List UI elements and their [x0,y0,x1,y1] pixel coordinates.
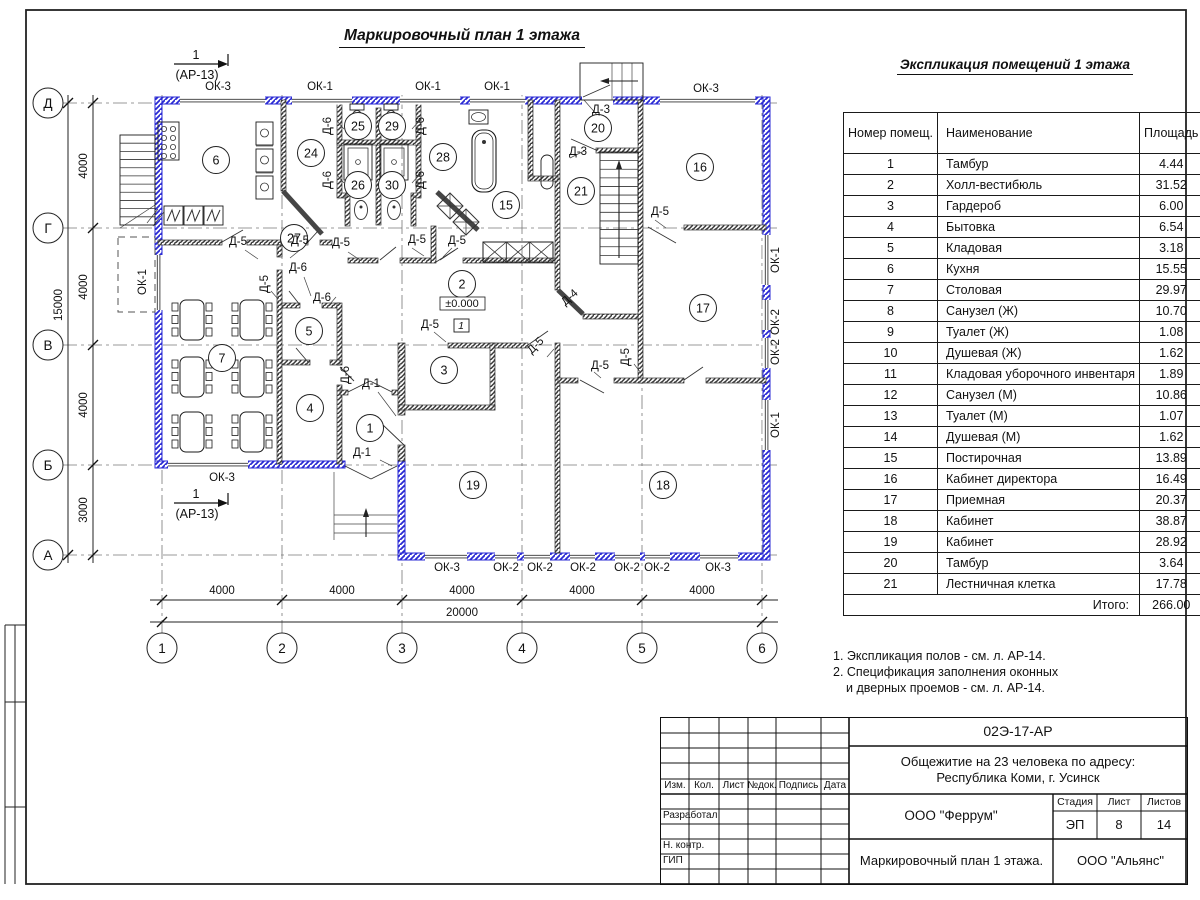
svg-text:4000: 4000 [78,392,90,418]
svg-text:ОК-2: ОК-2 [644,562,670,574]
explication-row: 21Лестничная клетка17.78 [844,574,1200,595]
explication-row: 16Кабинет директора16.49 [844,469,1200,490]
explication-row: 17Приемная20.37 [844,490,1200,511]
svg-text:21: 21 [574,185,588,199]
explication-row: 4Бытовка6.54 [844,217,1200,238]
explication-row: 8Санузел (Ж)10.70 [844,301,1200,322]
svg-text:ОК-3: ОК-3 [209,472,235,484]
svg-text:Д-5: Д-5 [229,236,247,248]
svg-text:5: 5 [638,641,646,656]
notes: 1. Экспликация полов - см. л. АР-14.2. С… [833,648,1058,696]
svg-text:3000: 3000 [78,497,90,523]
svg-text:Д-5: Д-5 [448,235,466,247]
explication-total-row: Итого: 266.00 [844,595,1200,616]
stage-value: ЭП [1053,811,1097,839]
explication-row: 20Тамбур3.64 [844,553,1200,574]
explication-row: 13Туалет (М)1.07 [844,406,1200,427]
explication-row: 19Кабинет28.92 [844,532,1200,553]
org-name: ООО "Феррум" [849,794,1053,839]
stage-label: Стадия [1053,794,1097,811]
svg-text:Д-6: Д-6 [340,366,352,384]
explication-header-row: Номер помещ. Наименование Площадь Ка по [844,113,1200,154]
svg-text:В: В [43,338,52,353]
svg-text:ОК-2: ОК-2 [770,339,782,365]
explication-row: 3Гардероб6.00 [844,196,1200,217]
svg-text:16: 16 [693,161,707,175]
sheet-title: Маркировочный план 1 этажа. [849,839,1054,884]
svg-text:Д-1: Д-1 [353,447,371,459]
svg-text:Д-5: Д-5 [408,234,426,246]
svg-text:20000: 20000 [446,607,478,619]
svg-text:Д-5: Д-5 [591,360,609,372]
svg-text:ОК-1: ОК-1 [770,412,782,438]
svg-text:1: 1 [458,320,464,332]
explication-row: 6Кухня15.55 [844,259,1200,280]
svg-text:Д-5: Д-5 [291,235,309,247]
svg-text:4000: 4000 [209,585,235,597]
role-label: Разработал [663,809,747,824]
drawing-sheet: 4000400040003000150004000400040004000400… [0,0,1200,900]
svg-text:1: 1 [193,48,200,62]
svg-text:Г: Г [44,221,52,236]
plan-title: Маркировочный план 1 этажа [332,27,592,48]
svg-text:19: 19 [466,479,480,493]
svg-text:(АР-13): (АР-13) [175,507,218,521]
svg-text:4000: 4000 [78,274,90,300]
svg-text:Д-3: Д-3 [569,146,587,158]
title-block: 02Э-17-АР Общежитие на 23 человека по ад… [660,717,1188,885]
svg-text:Д-4: Д-4 [559,287,581,308]
svg-text:Б: Б [44,458,53,473]
role-label: Н. контр. [663,839,747,854]
svg-text:5: 5 [306,325,313,339]
svg-text:ОК-2: ОК-2 [614,562,640,574]
svg-text:20: 20 [591,122,605,136]
plan-title-text: Маркировочный план 1 этажа [339,27,585,48]
rev-header: Дата [821,779,849,794]
svg-text:ОК-3: ОК-3 [205,81,231,93]
svg-text:ОК-3: ОК-3 [434,562,460,574]
explication-row: 9Туалет (Ж)1.08 [844,322,1200,343]
svg-text:1: 1 [158,641,166,656]
svg-text:ОК-3: ОК-3 [693,83,719,95]
sheets-total: 14 [1141,811,1187,839]
svg-text:ОК-1: ОК-1 [307,81,333,93]
explication-title: Экспликация помещений 1 этажа [843,57,1187,75]
svg-text:Д-5: Д-5 [421,319,439,331]
contractor: ООО "Альянс" [1054,839,1187,884]
svg-text:4000: 4000 [329,585,355,597]
svg-text:18: 18 [656,479,670,493]
svg-text:Д-5: Д-5 [651,206,669,218]
col-header-number: Номер помещ. [844,113,938,154]
explication-table: Номер помещ. Наименование Площадь Ка по … [843,112,1200,616]
svg-text:ОК-2: ОК-2 [527,562,553,574]
svg-text:ОК-3: ОК-3 [705,562,731,574]
svg-text:Д-6: Д-6 [415,171,427,189]
project-name: Общежитие на 23 человека по адресу: Респ… [849,746,1187,794]
sheets-label: Листов [1141,794,1187,811]
svg-text:3: 3 [441,364,448,378]
svg-text:2: 2 [278,641,286,656]
col-header-area: Площадь [1140,113,1200,154]
svg-text:Д: Д [43,96,52,111]
rev-header: Подпись [776,779,821,794]
note-line: 1. Экспликация полов - см. л. АР-14. [833,648,1058,664]
svg-text:4: 4 [307,402,314,416]
svg-text:Д-5: Д-5 [620,348,632,366]
svg-text:Д-5: Д-5 [259,275,271,293]
svg-text:Д-6: Д-6 [313,292,331,304]
svg-text:ОК-2: ОК-2 [770,309,782,335]
svg-text:4000: 4000 [78,153,90,179]
svg-text:4: 4 [518,641,526,656]
svg-text:±0.000: ±0.000 [445,298,479,310]
svg-text:Д-6: Д-6 [289,262,307,274]
svg-text:15: 15 [499,199,513,213]
svg-text:6: 6 [758,641,766,656]
rev-header: Изм. [661,779,689,794]
svg-text:6: 6 [213,154,220,168]
explication-row: 14Душевая (М)1.62 [844,427,1200,448]
svg-text:2: 2 [459,278,466,292]
note-line: 2. Спецификация заполнения оконных [833,664,1058,680]
rev-header: №док. [748,779,776,794]
explication-row: 12Санузел (М)10.86 [844,385,1200,406]
svg-text:4000: 4000 [569,585,595,597]
explication-row: 2Холл-вестибюль31.52 [844,175,1200,196]
explication-row: 18Кабинет38.87 [844,511,1200,532]
svg-text:ОК-1: ОК-1 [770,247,782,273]
svg-text:Д-6: Д-6 [322,117,334,135]
svg-text:Д-6: Д-6 [415,117,427,135]
explication-row: 7Столовая29.97 [844,280,1200,301]
svg-text:1: 1 [193,487,200,501]
svg-text:15000: 15000 [53,289,65,321]
doc-number: 02Э-17-АР [849,718,1187,746]
svg-text:ОК-1: ОК-1 [137,269,149,295]
total-label: Итого: [844,595,1140,616]
total-value: 266.00 [1140,595,1200,616]
explication-row: 11Кладовая уборочного инвентаря1.89 [844,364,1200,385]
svg-text:7: 7 [219,352,226,366]
note-line: и дверных проемов - см. л. АР-14. [833,680,1058,696]
svg-text:А: А [43,548,52,563]
svg-text:25: 25 [351,120,365,134]
explication-row: 15Постирочная13.89 [844,448,1200,469]
sheet-label: Лист [1097,794,1141,811]
explication-row: 10Душевая (Ж)1.62 [844,343,1200,364]
svg-text:1: 1 [367,422,374,436]
svg-text:(АР-13): (АР-13) [175,68,218,82]
explication-row: 5Кладовая3.18 [844,238,1200,259]
svg-text:Д-1: Д-1 [362,378,380,390]
col-header-name: Наименование [937,113,1139,154]
rev-header: Кол. [689,779,719,794]
explication-row: 1Тамбур4.44 [844,154,1200,175]
svg-text:ОК-2: ОК-2 [493,562,519,574]
svg-text:30: 30 [385,179,399,193]
svg-text:ОК-1: ОК-1 [484,81,510,93]
svg-text:Д-6: Д-6 [322,171,334,189]
svg-text:26: 26 [351,179,365,193]
svg-text:Д-5: Д-5 [332,237,350,249]
svg-text:Д-5: Д-5 [525,335,546,356]
svg-text:24: 24 [304,147,318,161]
svg-text:4000: 4000 [449,585,475,597]
sheet-number: 8 [1097,811,1141,839]
svg-text:28: 28 [436,151,450,165]
rev-header: Лист [719,779,748,794]
svg-text:ОК-2: ОК-2 [570,562,596,574]
svg-text:3: 3 [398,641,406,656]
role-label: ГИП [663,854,747,869]
svg-text:ОК-1: ОК-1 [415,81,441,93]
svg-text:4000: 4000 [689,585,715,597]
svg-text:Д-3: Д-3 [592,104,610,116]
svg-text:29: 29 [385,120,399,134]
svg-text:17: 17 [696,302,710,316]
